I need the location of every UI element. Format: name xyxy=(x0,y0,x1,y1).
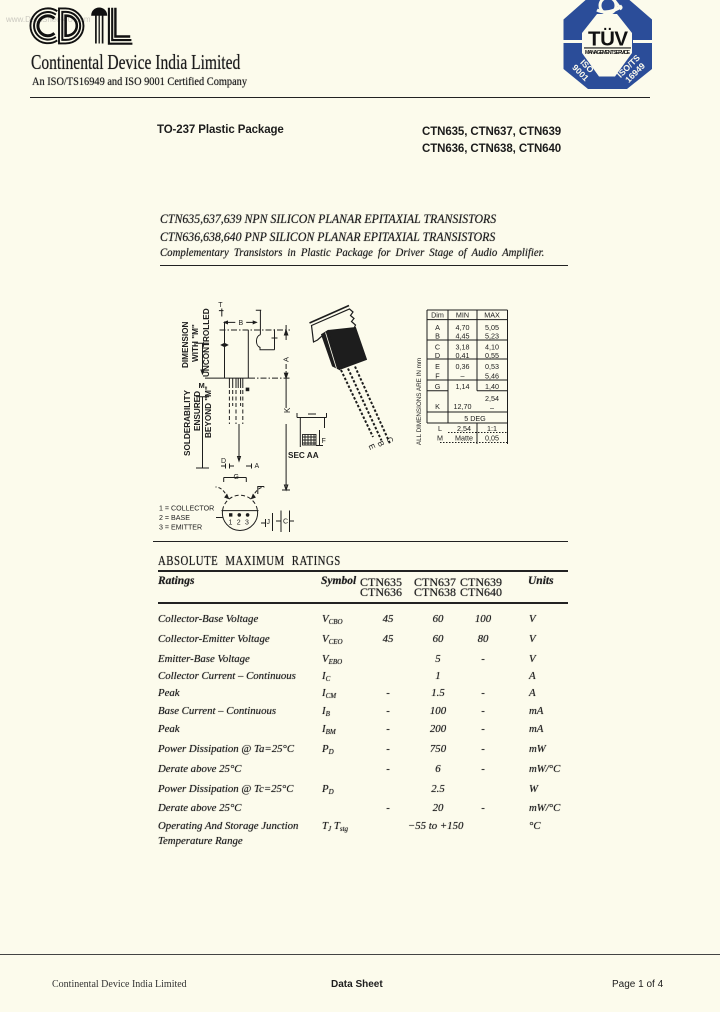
svg-text:Dim: Dim xyxy=(431,311,444,320)
svg-text:5,05: 5,05 xyxy=(485,323,499,332)
svg-text:1,14: 1,14 xyxy=(456,382,470,391)
svg-text:T: T xyxy=(218,302,223,309)
svg-text:D: D xyxy=(221,458,226,465)
svg-text:0,05: 0,05 xyxy=(485,434,499,443)
svg-text:2: 2 xyxy=(237,520,241,527)
svg-text:TÜV: TÜV xyxy=(588,27,628,50)
svg-text:A: A xyxy=(435,323,440,332)
svg-text:E: E xyxy=(435,362,440,371)
svg-text:4,70: 4,70 xyxy=(456,323,470,332)
svg-text:5 DEG: 5 DEG xyxy=(464,414,486,423)
svg-text:MANAGEMENT SERVICE: MANAGEMENT SERVICE xyxy=(585,50,631,56)
svg-text:–: – xyxy=(490,404,494,413)
svg-text:BEYOND "M": BEYOND "M" xyxy=(204,386,213,438)
svg-text:G: G xyxy=(234,474,239,481)
svg-text:M: M xyxy=(199,381,205,390)
svg-text:1,40: 1,40 xyxy=(485,382,499,391)
svg-text:E: E xyxy=(367,442,377,451)
svg-text:1: 1 xyxy=(229,520,233,527)
svg-text:C: C xyxy=(283,519,288,526)
svg-text:MAX: MAX xyxy=(484,311,500,320)
svg-text:J: J xyxy=(267,519,271,526)
svg-text:A: A xyxy=(282,357,291,362)
svg-text:SOLDERABILITY: SOLDERABILITY xyxy=(183,390,192,456)
svg-text:3: 3 xyxy=(245,520,249,527)
svg-text:5,46: 5,46 xyxy=(485,372,499,381)
svg-text:2,54: 2,54 xyxy=(457,424,471,433)
svg-text:M: M xyxy=(437,434,443,443)
svg-text:MIN: MIN xyxy=(456,311,469,320)
svg-text:2 = BASE: 2 = BASE xyxy=(159,514,190,522)
svg-text:0,53: 0,53 xyxy=(485,362,499,371)
svg-text:A: A xyxy=(255,463,260,470)
svg-text:D: D xyxy=(435,351,440,360)
svg-text:B: B xyxy=(435,332,440,341)
svg-text:5,23: 5,23 xyxy=(485,332,499,341)
svg-text:SEC AA: SEC AA xyxy=(288,451,319,460)
svg-text:ALL DIMENSIONS ARE IN mm: ALL DIMENSIONS ARE IN mm xyxy=(416,358,423,445)
svg-text:12,70: 12,70 xyxy=(454,402,472,411)
svg-text:0,55: 0,55 xyxy=(485,351,499,360)
svg-text:–: – xyxy=(461,372,465,381)
svg-text:G: G xyxy=(435,382,441,391)
svg-text:F: F xyxy=(435,372,440,381)
svg-text:K: K xyxy=(283,407,292,413)
svg-text:3 = EMITTER: 3 = EMITTER xyxy=(159,524,202,532)
svg-text:1 = COLLECTOR: 1 = COLLECTOR xyxy=(159,505,214,513)
svg-text:0,41: 0,41 xyxy=(456,351,470,360)
svg-text:4,45: 4,45 xyxy=(456,332,470,341)
svg-text:0,36: 0,36 xyxy=(456,362,470,371)
svg-text:DIMENSION: DIMENSION xyxy=(181,322,190,368)
svg-text:2,54: 2,54 xyxy=(485,394,499,403)
svg-text:K: K xyxy=(435,402,440,411)
svg-text:B: B xyxy=(239,320,244,327)
svg-text:F: F xyxy=(322,438,326,445)
svg-text:Matte: Matte xyxy=(455,434,473,443)
svg-text:1:1: 1:1 xyxy=(487,424,497,433)
svg-text:UNCONTROLLED: UNCONTROLLED xyxy=(202,308,211,377)
svg-text:L: L xyxy=(438,424,442,433)
